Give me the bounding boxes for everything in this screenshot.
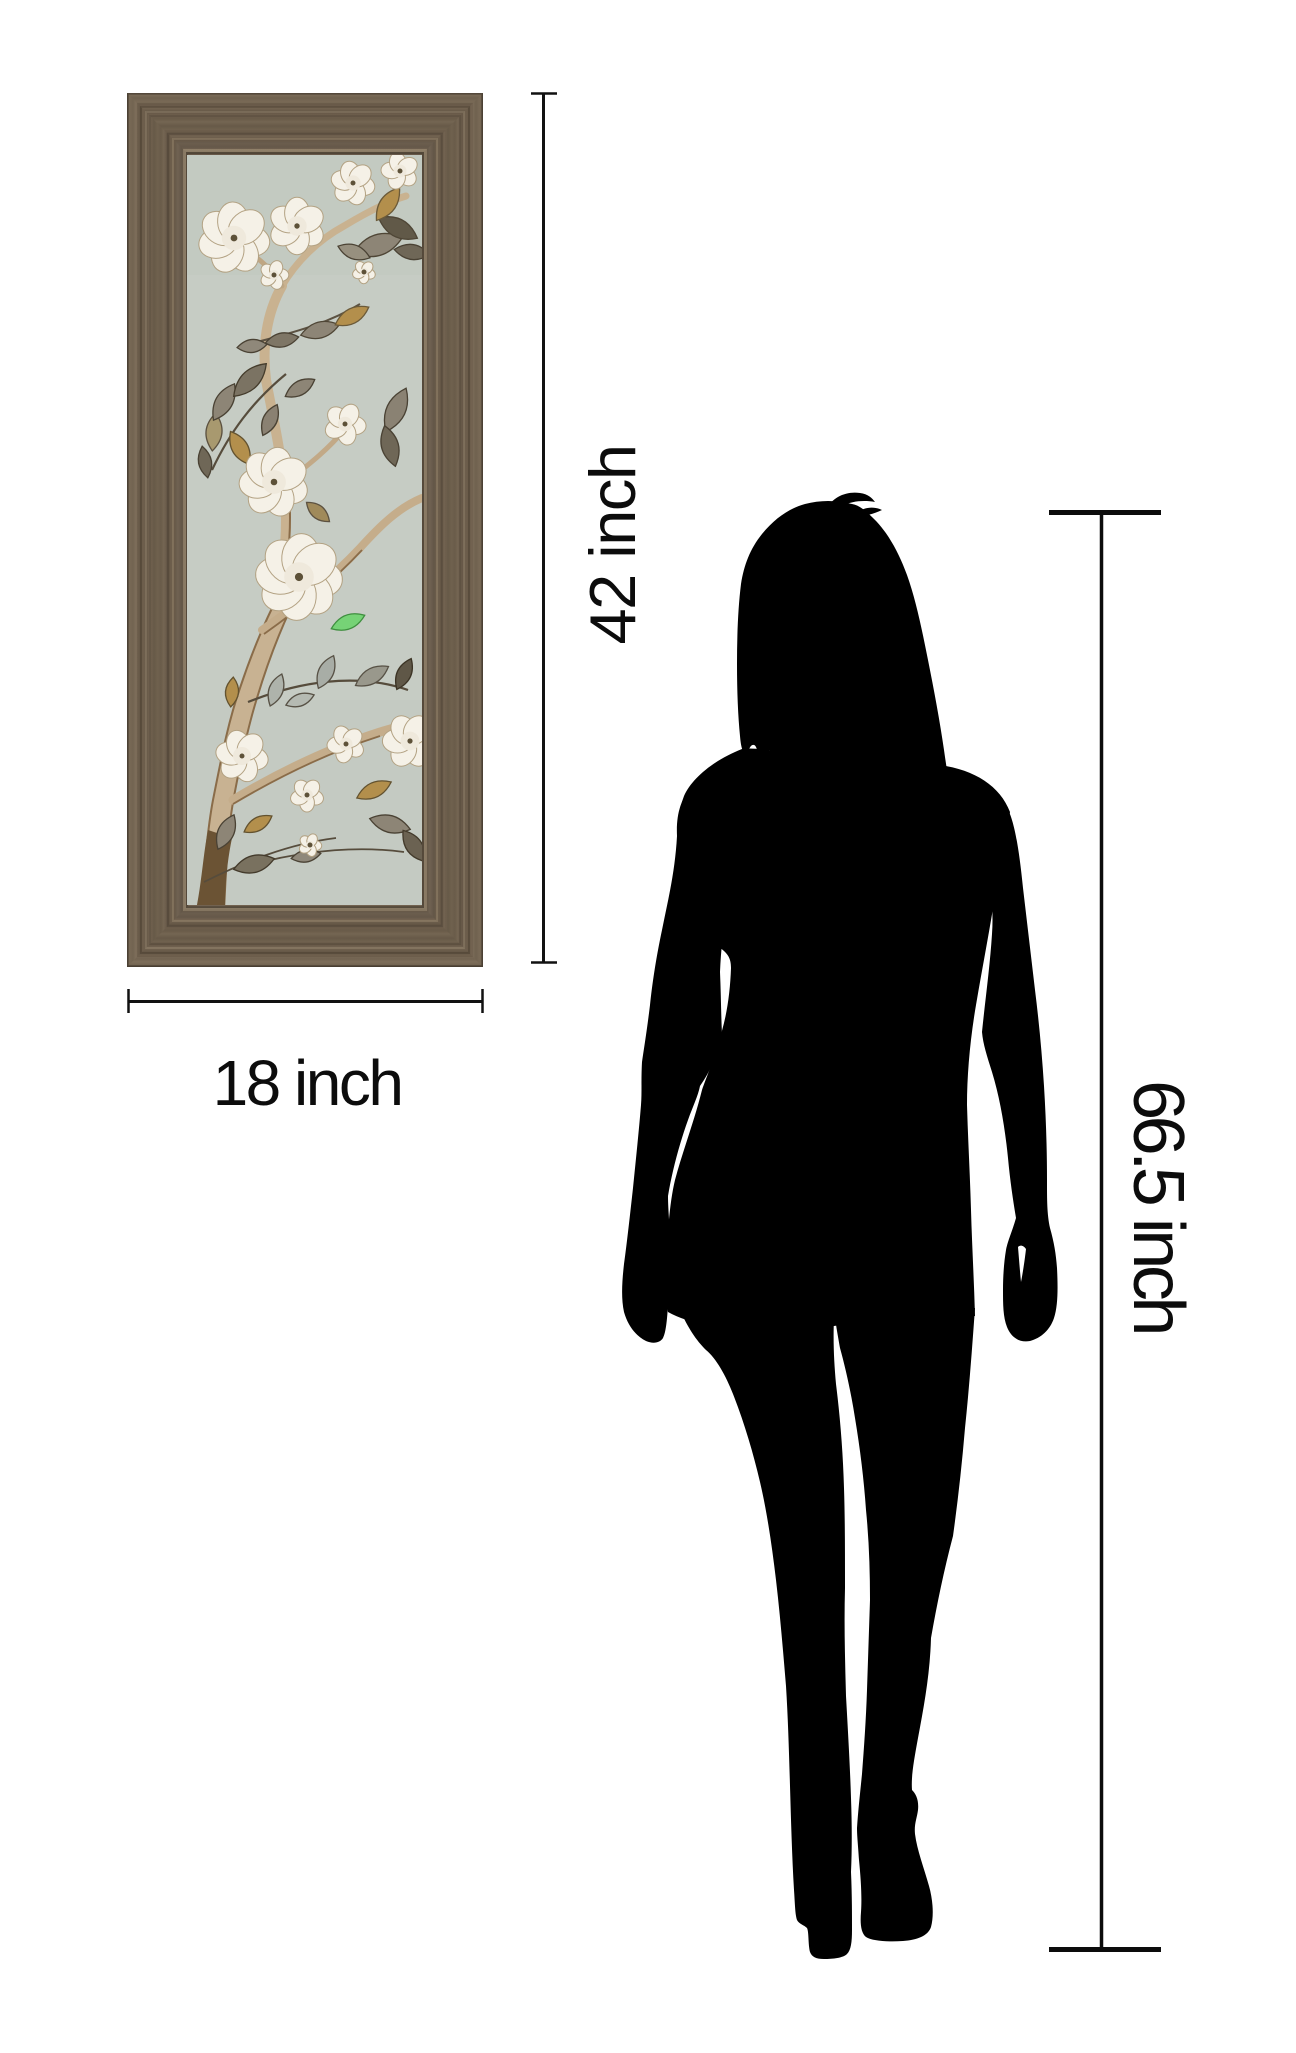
svg-text:42 inch: 42 inch xyxy=(576,445,649,644)
svg-text:66.5 inch: 66.5 inch xyxy=(1118,1080,1198,1332)
svg-text:18 inch: 18 inch xyxy=(213,1047,402,1119)
